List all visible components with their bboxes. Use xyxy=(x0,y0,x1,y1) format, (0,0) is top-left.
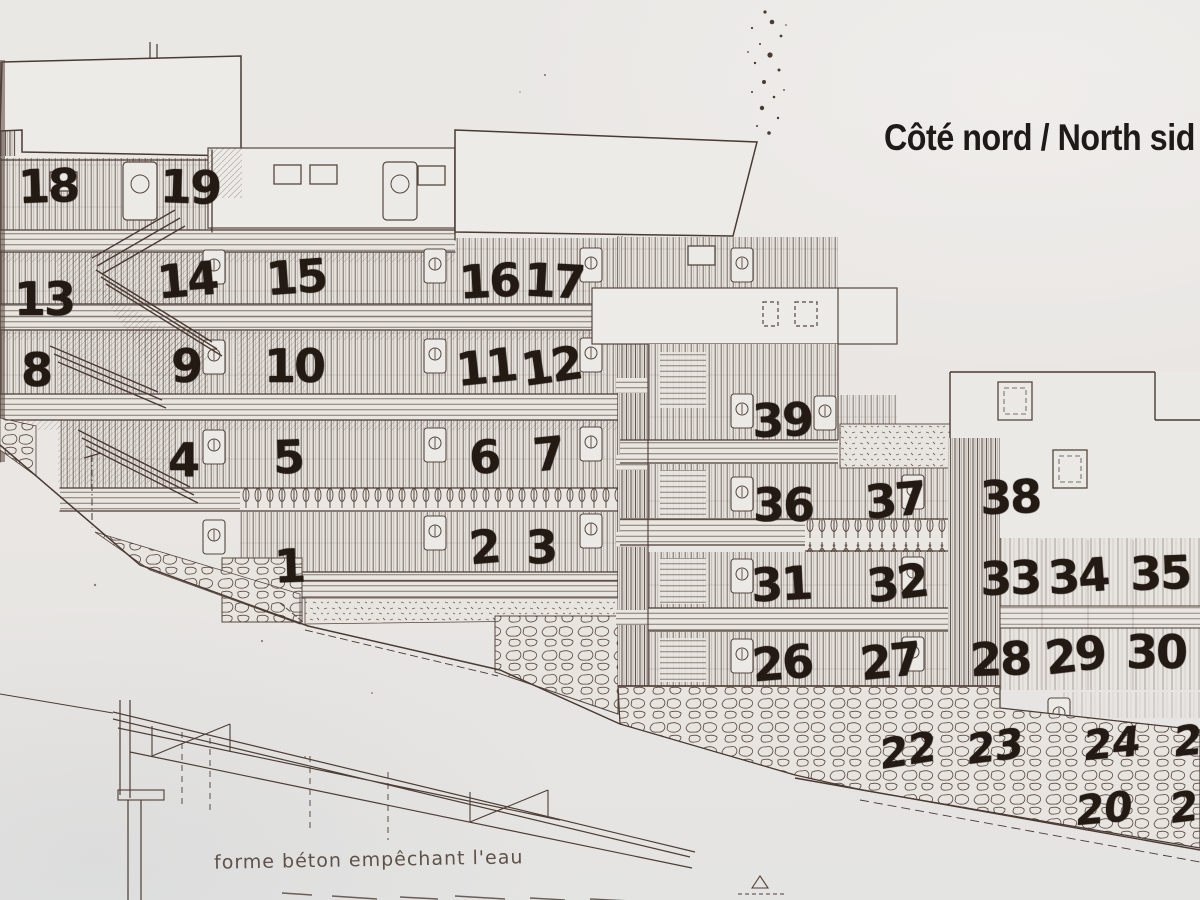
unit-label-27: 27 xyxy=(858,635,922,687)
unit-label-1: 1 xyxy=(273,542,305,589)
unit-label-30: 30 xyxy=(1126,629,1186,675)
unit-label-23: 23 xyxy=(966,723,1024,771)
unit-label-8: 8 xyxy=(21,347,51,393)
unit-label-19: 19 xyxy=(159,163,221,211)
unit-label-28: 28 xyxy=(969,635,1031,683)
unit-label-20: 20 xyxy=(1074,786,1134,832)
unit-label-13: 13 xyxy=(14,276,74,322)
unit-label-29: 29 xyxy=(1042,629,1107,682)
building-left-roof xyxy=(0,56,241,160)
unit-label-2: 2 xyxy=(467,523,501,571)
unit-label-37: 37 xyxy=(863,474,927,525)
unit-label-11: 11 xyxy=(454,341,518,393)
unit-label-39: 39 xyxy=(751,396,813,444)
building-middle-roof xyxy=(455,130,757,236)
unit-label-5: 5 xyxy=(272,433,304,480)
unit-label-36: 36 xyxy=(753,482,813,528)
unit-label-15: 15 xyxy=(264,252,327,302)
unit-label-21-partial: 21 xyxy=(1169,782,1200,830)
unit-label-7: 7 xyxy=(531,430,566,479)
unit-label-32: 32 xyxy=(864,557,929,610)
side-title: Côté nord / North sid xyxy=(884,117,1195,159)
unit-label-4: 4 xyxy=(168,437,198,483)
unit-label-10: 10 xyxy=(264,343,324,389)
unit-label-26: 26 xyxy=(750,637,814,688)
unit-label-35: 35 xyxy=(1129,549,1191,597)
unit-label-31: 31 xyxy=(750,559,812,608)
unit-label-22: 22 xyxy=(880,726,936,776)
unit-label-24: 24 xyxy=(1082,721,1142,767)
scanned-elevation-drawing: Côté nord / North sid forme béton empêch… xyxy=(0,0,1200,900)
unit-label-33: 33 xyxy=(979,554,1041,602)
unit-label-16: 16 xyxy=(458,256,520,305)
unit-label-6: 6 xyxy=(468,433,500,481)
unit-label-25-partial: 25 xyxy=(1172,717,1200,763)
unit-label-17: 17 xyxy=(523,256,585,305)
unit-label-3: 3 xyxy=(525,523,557,570)
unit-label-9: 9 xyxy=(171,343,201,389)
unit-label-38: 38 xyxy=(979,473,1041,521)
unit-label-18: 18 xyxy=(17,162,79,210)
unit-label-12: 12 xyxy=(518,339,584,393)
unit-label-14: 14 xyxy=(155,254,219,305)
unit-label-34: 34 xyxy=(1046,551,1109,601)
